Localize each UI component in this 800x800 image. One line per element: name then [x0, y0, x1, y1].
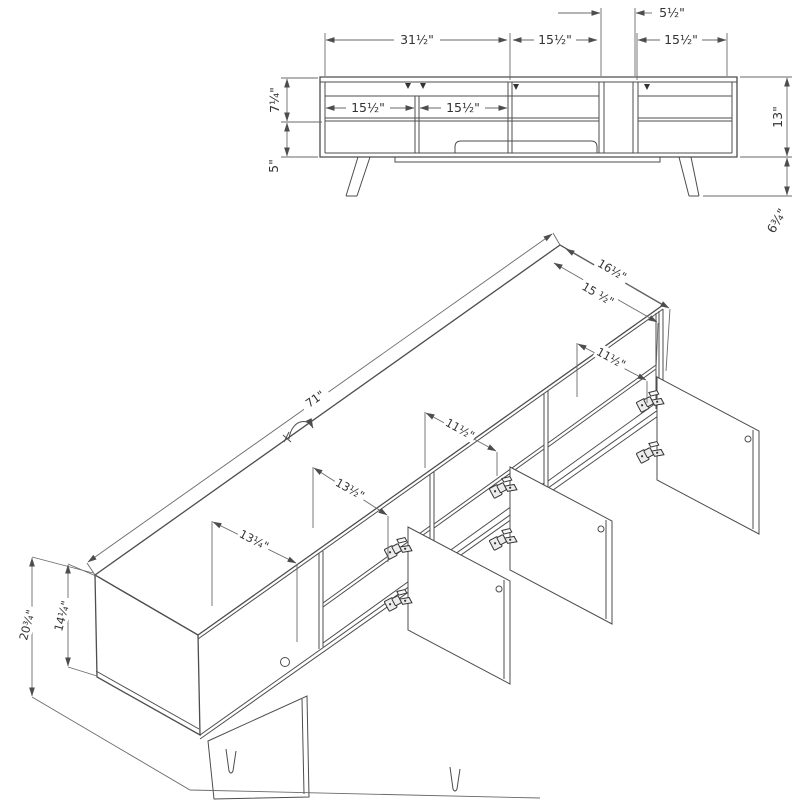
dim-label: 13": [770, 106, 785, 128]
door-panel-mid-right: [510, 467, 612, 624]
dim-label: 11½": [443, 415, 477, 442]
iso-leg: [450, 767, 460, 791]
dimension-leg-height: 6¾": [703, 158, 792, 237]
dimension-opening-depth-a: 13¼": [212, 521, 297, 642]
dim-label: 31½": [400, 32, 434, 47]
dimension-lower-height: 5": [266, 123, 318, 177]
dimension-upper-height: 7¼": [267, 78, 322, 122]
dimension-body-height: 13": [740, 77, 792, 157]
dim-label: 5": [266, 159, 281, 173]
cam-mark: [513, 84, 519, 90]
dimension-right-section-width: 15½": [638, 32, 726, 47]
door-panel-left: [208, 696, 309, 799]
iso-cabinet-body: [95, 245, 668, 739]
dim-label: 20¾": [16, 608, 38, 642]
dim-label: 16½": [595, 256, 629, 284]
front-left-leg: [346, 157, 370, 196]
front-right-leg: [679, 157, 699, 196]
cam-mark: [644, 84, 650, 90]
cam-mark: [420, 83, 426, 89]
front-flap-panel: [455, 141, 597, 153]
dim-label: 13¼": [237, 527, 271, 554]
dimension-inner-left-width: 15½": [326, 100, 414, 115]
dim-label: 13½": [333, 475, 367, 502]
dim-label: 7¼": [267, 87, 282, 113]
dim-label: 15½": [538, 32, 572, 47]
dimension-opening-depth-b: 13½": [313, 467, 388, 562]
dim-label: 5½": [659, 5, 685, 20]
dimension-mid-section-width: 15½": [513, 32, 597, 47]
isometric-exploded-view: 71" 16½" 15 ½" 11½": [14, 233, 759, 799]
diagram-canvas: 5½" 31½" 15½" 15½" 15½" 15½": [0, 0, 800, 800]
cam-hole: [281, 658, 290, 667]
dim-label: 15½": [351, 100, 385, 115]
dimension-body-height-iso: 14¼": [49, 564, 97, 676]
dim-label: 15½": [446, 100, 480, 115]
dim-label: 15 ½": [579, 279, 616, 309]
dimension-inner-right-width: 15½": [420, 100, 507, 115]
dim-label: 15½": [664, 32, 698, 47]
tv-stand-dimension-diagram: 5½" 31½" 15½" 15½" 15½" 15½": [0, 0, 800, 800]
dimension-right-opening-depth: 11½": [577, 343, 647, 403]
dim-label: 11½": [594, 344, 628, 371]
dimension-total-width: 71": [87, 233, 560, 575]
cam-mark: [405, 83, 411, 89]
door-panel-right: [657, 377, 759, 534]
front-elevation-view: 5½" 31½" 15½" 15½" 15½" 15½": [266, 5, 792, 237]
dim-label: 14¼": [51, 599, 73, 633]
front-base-plinth: [395, 157, 660, 162]
front-cabinet-body: [320, 77, 737, 162]
